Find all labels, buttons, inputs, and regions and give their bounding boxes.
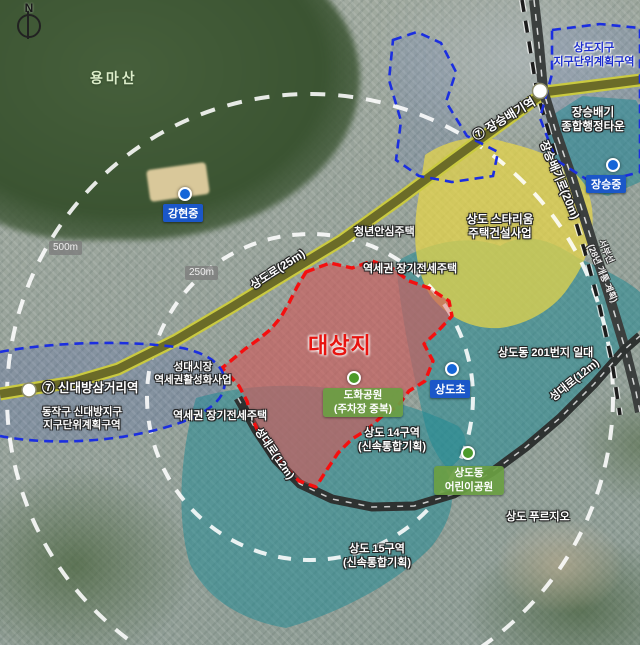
place-label-dohwa-park: 도화공원 (주차장 중복) [323,388,403,417]
scale-badge-500m: 500m [49,241,82,255]
school-marker-icon [445,362,459,376]
zone-admin-line2: 종합행정타운 [561,121,624,133]
compass-label: N [14,2,44,14]
school-marker-icon [178,187,192,201]
compass-north-icon: N [14,2,44,38]
zone-label-youth-housing: 청년안심주택 [354,226,415,240]
scale-badge-250m: 250m [185,266,218,280]
place-label-ganghyeon-middle: 강현중 [163,204,203,222]
zone-label-sangdo-district: 상도지구 지구단위계획구역 [546,41,640,70]
zone-label-jeonse-housing-1: 역세권 장기전세주택 [363,263,457,277]
zone-label-jeonse-housing-2: 역세권 장기전세주택 [173,410,267,424]
zone-admin-line1: 장승배기 [572,107,614,119]
place-label-sangdo-elementary: 상도초 [430,380,470,398]
zone-label-dongjak-sindaebang: 동작구 신대방지구 지구단위계획구역 [32,406,132,432]
school-marker-icon [606,158,620,172]
zone-starium-line1: 상도 스타리움 [467,214,534,226]
place-label-children-park: 상도동 어린이공원 [434,466,504,495]
children-park-line2: 어린이공원 [445,481,493,493]
zone-sangdo14-line2: (신속통합기획) [358,441,426,453]
zone-dongjak-line2: 지구단위계획구역 [43,419,120,431]
zone-label-starium: 상도 스타리움 주택건설사업 [440,213,560,242]
station-marker-sindaebang [22,383,36,397]
site-label: 대상지 [308,328,372,360]
zone-starium-line2: 주택건설사업 [468,228,531,240]
zone-sangdo15-line1: 상도 15구역 [349,543,405,555]
zone-label-sangdo15: 상도 15구역 (신속통합기획) [322,543,432,571]
zone-market-line1: 성대시장 [174,361,213,373]
children-park-line1: 상도동 [455,467,484,479]
zone-label-sangdo201: 상도동 201번지 일대 [498,347,593,361]
map-overlay-graphics [0,0,640,645]
zone-sangdo15-line2: (신속통합기획) [343,557,411,569]
zone-label-sangdo14: 상도 14구역 (신속통합기획) [337,427,447,455]
compass-circle [17,14,41,38]
zone-label-jangseung-admin: 장승배기 종합행정타운 [545,106,640,135]
satellite-map: N 용마산 500m 250m ⑦ 신대방삼거리역 ⑦ 장승배기역 상도로(25… [0,0,640,645]
mountain-label-yongmasan: 용마산 [90,68,138,88]
place-label-sangdo-purgio: 상도 푸르지오 [506,511,570,525]
zone-sangdo-district-line2: 지구단위계획구역 [554,56,635,68]
station-label-sindaebang: ⑦ 신대방삼거리역 [42,381,138,397]
zone-sangdo-district-line1: 상도지구 [574,42,614,54]
dohwa-park-line1: 도화공원 [344,389,383,401]
park-marker-icon [347,371,361,385]
place-label-jangseung-middle: 장승중 [586,175,626,193]
zone-market-line2: 역세권활성화사업 [154,374,231,386]
dohwa-park-line2: (주차장 중복) [334,403,392,415]
station-marker-jangseungbaegi [533,84,548,99]
zone-sangdo14-line1: 상도 14구역 [364,427,420,439]
zone-dongjak-line1: 동작구 신대방지구 [42,406,122,418]
zone-label-seongdae-market: 성대시장 역세권활성화사업 [143,361,243,387]
park-marker-icon [461,446,475,460]
